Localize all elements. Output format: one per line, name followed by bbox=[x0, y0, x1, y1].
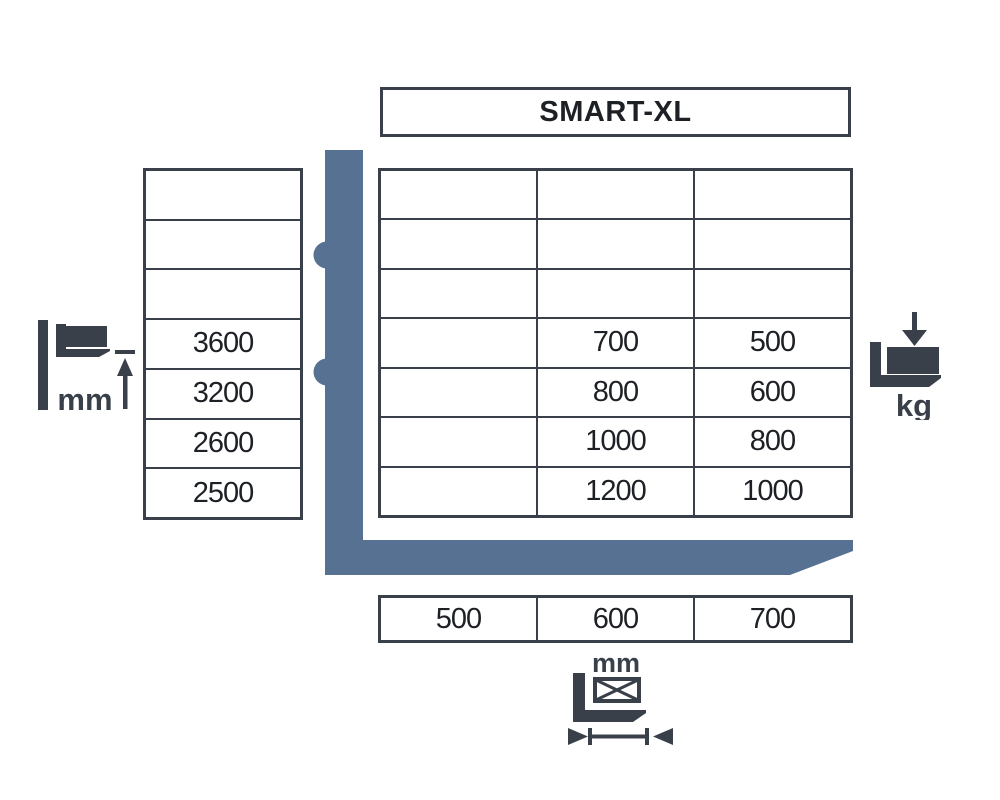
dim-tick-right bbox=[645, 728, 649, 745]
mast-roller-top bbox=[314, 242, 341, 269]
lift-height-cell: 2600 bbox=[146, 420, 300, 468]
capacity-cell: 800 bbox=[695, 418, 850, 465]
capacity-cell: 600 bbox=[695, 369, 850, 416]
capacity-cell bbox=[381, 319, 536, 366]
lift-height-cell bbox=[146, 221, 300, 269]
dim-line bbox=[592, 735, 645, 739]
capacity-cell: 1200 bbox=[538, 468, 693, 515]
capacity-cell bbox=[381, 270, 536, 317]
arrow-down-icon bbox=[902, 330, 927, 346]
capacity-cell bbox=[381, 171, 536, 218]
capacity-cell bbox=[695, 270, 850, 317]
lift-height-cell: 2500 bbox=[146, 469, 300, 517]
capacity-cell bbox=[538, 171, 693, 218]
measure-dash-icon bbox=[115, 350, 135, 354]
capacity-cell: 800 bbox=[538, 369, 693, 416]
capacity-cell bbox=[695, 220, 850, 267]
lift-height-cell bbox=[146, 270, 300, 318]
mast-bar-icon bbox=[38, 320, 48, 410]
capacity-cell: 700 bbox=[538, 319, 693, 366]
arrow-up-icon bbox=[117, 358, 133, 376]
title-box: SMART-XL bbox=[380, 87, 851, 137]
fork-blade-icon bbox=[870, 375, 941, 387]
capacity-cell bbox=[381, 220, 536, 267]
lift-height-cell bbox=[146, 171, 300, 219]
mast-roller-bottom bbox=[314, 359, 341, 386]
load-center-table: 500 600 700 bbox=[378, 595, 853, 643]
dim-tick-left bbox=[588, 728, 592, 745]
load-length-unit-label: mm bbox=[592, 650, 640, 678]
capacity-cell bbox=[381, 369, 536, 416]
capacity-cell bbox=[538, 270, 693, 317]
capacity-cell bbox=[381, 418, 536, 465]
capacity-table: 700 500 800 600 1000 800 1200 1000 bbox=[378, 168, 853, 518]
load-center-cell: 700 bbox=[695, 598, 850, 640]
capacity-cell bbox=[538, 220, 693, 267]
capacity-unit-label: kg bbox=[896, 388, 932, 420]
capacity-cell: 1000 bbox=[695, 468, 850, 515]
load-center-cell: 600 bbox=[538, 598, 693, 640]
lift-height-cell: 3200 bbox=[146, 370, 300, 418]
fork-blade-icon bbox=[56, 349, 110, 357]
capacity-icon: kg bbox=[862, 308, 948, 420]
dim-arrow-left bbox=[568, 728, 588, 745]
load-block-icon bbox=[887, 347, 939, 374]
load-center-cell: 500 bbox=[381, 598, 536, 640]
lift-height-cell: 3600 bbox=[146, 320, 300, 368]
load-length-icon: mm bbox=[563, 650, 678, 750]
load-block-icon bbox=[66, 326, 107, 347]
arrow-down-shaft bbox=[912, 312, 917, 332]
length-dimension-arrow bbox=[568, 728, 673, 745]
capacity-cell bbox=[695, 171, 850, 218]
lift-height-table: 3600 3200 2600 2500 bbox=[143, 168, 303, 520]
capacity-cell: 500 bbox=[695, 319, 850, 366]
capacity-cell: 1000 bbox=[538, 418, 693, 465]
arrow-up-shaft bbox=[123, 374, 128, 409]
lift-height-unit-label: mm bbox=[57, 382, 112, 417]
capacity-cell bbox=[381, 468, 536, 515]
fork-blade-icon bbox=[573, 710, 646, 722]
lift-height-icon: mm bbox=[25, 312, 150, 418]
dim-arrow-right bbox=[653, 728, 673, 745]
page-title: SMART-XL bbox=[539, 96, 691, 129]
diagram-canvas: SMART-XL 3600 3200 2600 2500 700 500 800… bbox=[0, 0, 1000, 800]
